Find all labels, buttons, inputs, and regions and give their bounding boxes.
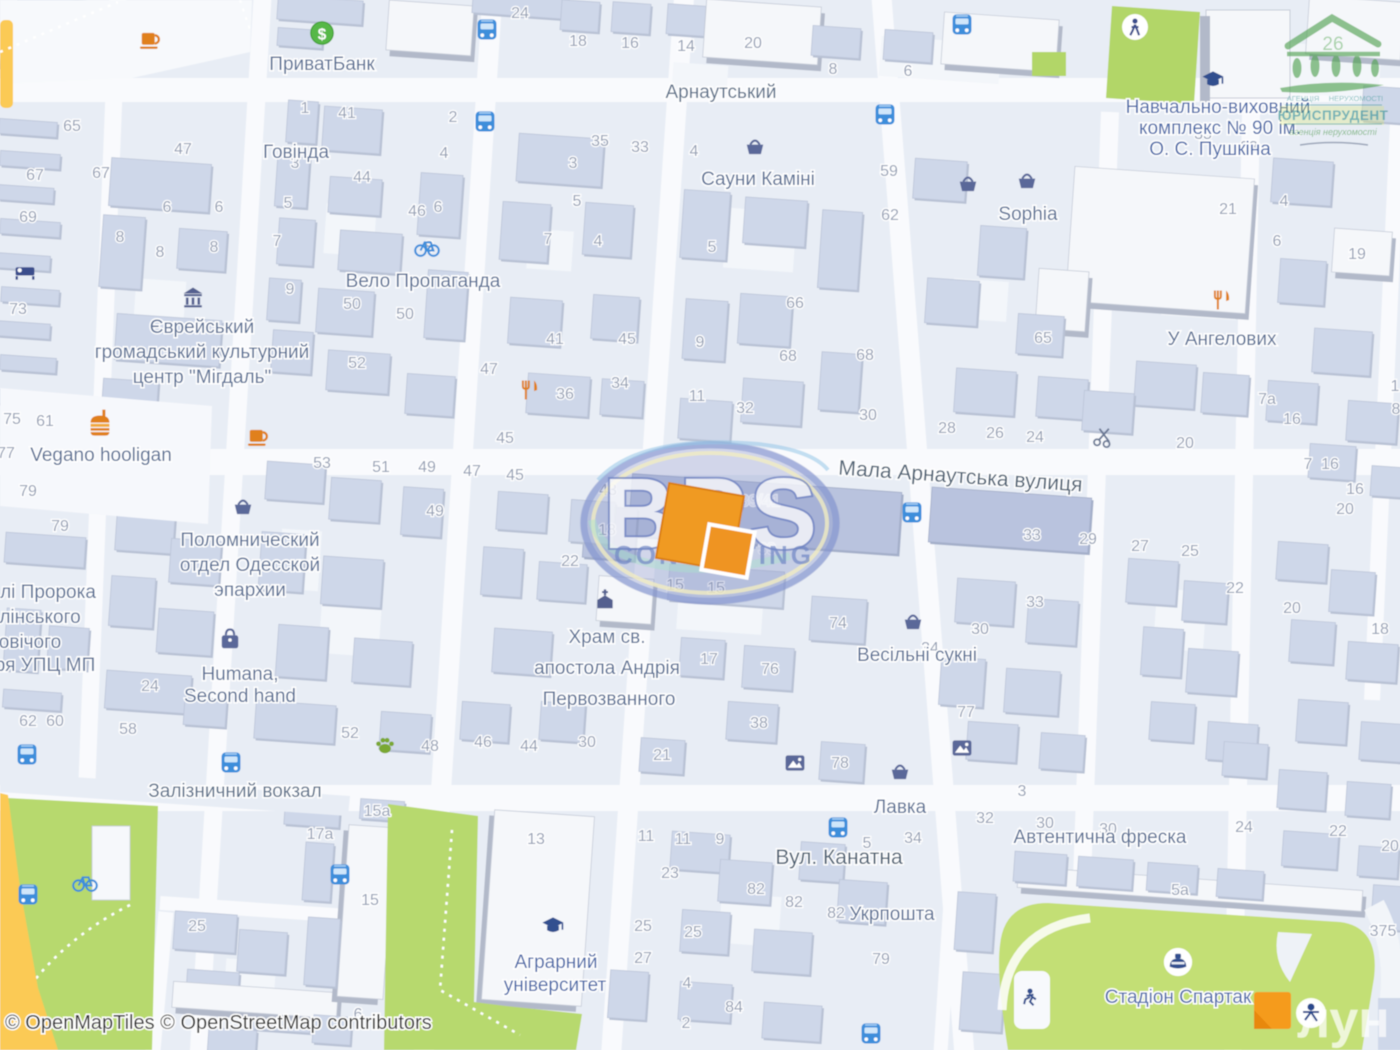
svg-text:центр "Мігдаль": центр "Мігдаль" xyxy=(133,367,272,388)
svg-text:32: 32 xyxy=(976,810,994,827)
svg-text:3: 3 xyxy=(569,155,578,172)
svg-text:375: 375 xyxy=(1370,923,1397,940)
svg-text:65: 65 xyxy=(1034,330,1052,347)
svg-text:45: 45 xyxy=(618,331,636,348)
svg-text:50: 50 xyxy=(396,306,414,323)
svg-text:62: 62 xyxy=(19,713,37,730)
svg-text:22: 22 xyxy=(1329,823,1347,840)
svg-text:ПриватБанк: ПриватБанк xyxy=(269,54,375,75)
svg-text:5: 5 xyxy=(708,239,717,256)
svg-text:16: 16 xyxy=(1283,411,1301,428)
svg-text:77: 77 xyxy=(0,445,15,462)
svg-text:20: 20 xyxy=(1283,600,1301,617)
svg-text:6: 6 xyxy=(1273,233,1282,250)
svg-text:16: 16 xyxy=(1321,456,1339,473)
svg-text:5a: 5a xyxy=(1171,882,1189,899)
svg-text:41: 41 xyxy=(338,105,356,122)
svg-text:14: 14 xyxy=(677,38,695,55)
svg-text:апостола Андрія: апостола Андрія xyxy=(534,658,680,679)
svg-text:20: 20 xyxy=(744,35,762,52)
svg-text:18: 18 xyxy=(569,33,587,50)
svg-text:73: 73 xyxy=(9,301,27,318)
svg-text:15a: 15a xyxy=(364,803,391,820)
svg-text:О. С. Пушкіна: О. С. Пушкіна xyxy=(1149,139,1271,160)
svg-text:8: 8 xyxy=(210,239,219,256)
svg-text:52: 52 xyxy=(341,725,359,742)
svg-text:46: 46 xyxy=(408,203,426,220)
svg-text:49: 49 xyxy=(426,503,444,520)
svg-text:4: 4 xyxy=(683,975,692,992)
svg-text:33: 33 xyxy=(1023,527,1041,544)
svg-text:ЮРИСПРУДЕНТ: ЮРИСПРУДЕНТ xyxy=(1278,108,1389,123)
svg-text:50: 50 xyxy=(343,296,361,313)
svg-text:11: 11 xyxy=(675,831,692,848)
svg-text:19: 19 xyxy=(1348,246,1366,263)
svg-text:Говінда: Говінда xyxy=(263,142,329,163)
svg-text:47: 47 xyxy=(480,361,498,378)
svg-text:24: 24 xyxy=(1026,429,1044,446)
svg-text:44: 44 xyxy=(353,169,371,186)
svg-text:Vegano hooligan: Vegano hooligan xyxy=(30,445,172,466)
svg-text:6: 6 xyxy=(163,199,172,216)
svg-text:82: 82 xyxy=(827,905,845,922)
svg-text:76: 76 xyxy=(761,661,779,678)
svg-text:Humana,: Humana, xyxy=(201,664,278,685)
svg-text:25: 25 xyxy=(1181,543,1199,560)
svg-text:Стадіон Спартак: Стадіон Спартак xyxy=(1105,987,1252,1008)
svg-text:67: 67 xyxy=(26,167,44,184)
svg-text:46: 46 xyxy=(474,734,492,751)
svg-text:58: 58 xyxy=(119,721,137,738)
svg-text:Первозванного: Первозванного xyxy=(543,689,676,710)
svg-text:13: 13 xyxy=(527,831,545,848)
svg-text:2: 2 xyxy=(449,109,458,126)
svg-text:НЕРУХОМОСТІ: НЕРУХОМОСТІ xyxy=(1329,94,1384,103)
svg-text:33: 33 xyxy=(1026,594,1044,611)
svg-text:Укрпошта: Укрпошта xyxy=(849,904,935,925)
svg-text:8: 8 xyxy=(116,229,125,246)
svg-text:47: 47 xyxy=(463,463,481,480)
svg-text:45: 45 xyxy=(496,430,514,447)
svg-text:16: 16 xyxy=(621,35,639,52)
svg-text:79: 79 xyxy=(872,951,890,968)
svg-text:2: 2 xyxy=(682,1015,691,1032)
svg-text:Вело Пропаганда: Вело Пропаганда xyxy=(346,271,501,292)
svg-text:4: 4 xyxy=(594,233,603,250)
svg-text:34: 34 xyxy=(611,375,629,392)
svg-text:44: 44 xyxy=(520,738,538,755)
svg-text:51: 51 xyxy=(372,459,390,476)
svg-text:Храм св.: Храм св. xyxy=(568,627,645,648)
svg-text:25: 25 xyxy=(634,918,652,935)
svg-text:30: 30 xyxy=(578,734,596,751)
svg-text:громадський культурний: громадський культурний xyxy=(95,342,310,363)
svg-text:22: 22 xyxy=(561,553,579,570)
svg-text:Єврейський: Єврейський xyxy=(150,317,254,338)
svg-text:Second hand: Second hand xyxy=(184,686,296,707)
svg-text:69: 69 xyxy=(19,209,37,226)
svg-text:79: 79 xyxy=(19,483,37,500)
svg-text:24: 24 xyxy=(1235,819,1253,836)
svg-text:20: 20 xyxy=(1381,838,1399,855)
svg-text:Автентична фреска: Автентична фреска xyxy=(1013,827,1186,848)
svg-text:Сауни Каміні: Сауни Каміні xyxy=(701,169,815,190)
svg-text:65: 65 xyxy=(63,118,81,135)
svg-text:30: 30 xyxy=(859,407,877,424)
svg-text:8: 8 xyxy=(1392,401,1400,418)
svg-text:4: 4 xyxy=(1280,193,1289,210)
svg-text:24: 24 xyxy=(511,5,529,22)
svg-text:68: 68 xyxy=(856,347,874,364)
svg-text:Арнаутський: Арнаутський xyxy=(665,82,776,103)
svg-text:11: 11 xyxy=(689,388,706,405)
svg-text:Вул. Канатна: Вул. Канатна xyxy=(775,846,903,869)
svg-text:7: 7 xyxy=(544,231,553,248)
svg-text:ря УПЦ МП: ря УПЦ МП xyxy=(0,655,95,676)
svg-text:82: 82 xyxy=(785,894,803,911)
svg-text:52: 52 xyxy=(348,355,366,372)
svg-text:27: 27 xyxy=(1131,538,1149,555)
svg-text:1: 1 xyxy=(1391,378,1400,395)
svg-text:7: 7 xyxy=(273,233,282,250)
svg-text:25: 25 xyxy=(188,918,206,935)
svg-text:67: 67 xyxy=(92,165,110,182)
svg-text:6: 6 xyxy=(904,63,913,80)
svg-text:53: 53 xyxy=(313,455,331,472)
svg-text:Аграрний: Аграрний xyxy=(514,952,597,973)
svg-text:3: 3 xyxy=(1018,783,1027,800)
svg-text:45: 45 xyxy=(506,467,524,484)
svg-text:лінського: лінського xyxy=(0,607,81,628)
svg-text:8: 8 xyxy=(829,61,838,78)
svg-text:9: 9 xyxy=(696,334,705,351)
svg-text:7: 7 xyxy=(1304,456,1313,473)
svg-text:47: 47 xyxy=(174,141,192,158)
svg-text:эпархии: эпархии xyxy=(214,580,286,601)
svg-text:79: 79 xyxy=(51,518,69,535)
svg-text:9: 9 xyxy=(286,281,295,298)
svg-text:8: 8 xyxy=(156,244,165,261)
svg-text:21: 21 xyxy=(653,747,671,764)
svg-text:66: 66 xyxy=(786,295,804,312)
svg-text:36: 36 xyxy=(556,386,574,403)
svg-text:1: 1 xyxy=(301,100,310,117)
svg-text:23: 23 xyxy=(661,865,679,882)
svg-text:27: 27 xyxy=(634,950,652,967)
svg-text:6: 6 xyxy=(434,199,443,216)
svg-text:4: 4 xyxy=(690,143,699,160)
svg-text:75: 75 xyxy=(3,411,21,428)
svg-text:отдел Одесской: отдел Одесской xyxy=(180,555,320,576)
svg-text:24: 24 xyxy=(141,678,159,695)
svg-text:21: 21 xyxy=(1219,201,1237,218)
svg-text:78: 78 xyxy=(831,755,849,772)
svg-text:16: 16 xyxy=(1346,481,1364,498)
svg-text:Sophia: Sophia xyxy=(998,204,1058,225)
svg-text:Поломнический: Поломнический xyxy=(180,530,319,551)
svg-text:30: 30 xyxy=(971,621,989,638)
svg-text:університет: університет xyxy=(504,975,607,996)
svg-text:35: 35 xyxy=(591,133,609,150)
svg-text:20: 20 xyxy=(1336,501,1354,518)
svg-text:7a: 7a xyxy=(1258,391,1276,408)
svg-text:Весільні сукні: Весільні сукні xyxy=(857,645,977,666)
svg-text:59: 59 xyxy=(880,163,898,180)
svg-text:34: 34 xyxy=(904,830,922,847)
svg-text:агенція нерухомості: агенція нерухомості xyxy=(1289,127,1377,137)
svg-text:29: 29 xyxy=(1079,531,1097,548)
svg-text:62: 62 xyxy=(881,207,899,224)
svg-text:68: 68 xyxy=(779,348,797,365)
svg-text:74: 74 xyxy=(829,615,847,632)
svg-text:33: 33 xyxy=(631,139,649,156)
svg-text:У Ангелових: У Ангелових xyxy=(1167,329,1277,350)
svg-text:82: 82 xyxy=(747,881,765,898)
svg-text:9: 9 xyxy=(716,831,725,848)
svg-text:22: 22 xyxy=(1226,580,1244,597)
svg-text:20: 20 xyxy=(1176,435,1194,452)
svg-text:49: 49 xyxy=(418,459,436,476)
svg-text:38: 38 xyxy=(750,715,768,732)
svg-text:5: 5 xyxy=(573,193,582,210)
svg-text:32: 32 xyxy=(736,400,754,417)
svg-text:17a: 17a xyxy=(307,826,334,843)
svg-text:Залізничний вокзал: Залізничний вокзал xyxy=(148,781,321,802)
svg-text:© OpenMapTiles © OpenStreetMap: © OpenMapTiles © OpenStreetMap contribut… xyxy=(5,1012,432,1034)
svg-text:Лавка: Лавка xyxy=(874,797,927,818)
svg-text:60: 60 xyxy=(46,713,64,730)
svg-text:лі Пророка: лі Пророка xyxy=(0,582,96,603)
svg-text:26: 26 xyxy=(986,425,1004,442)
svg-text:15: 15 xyxy=(361,892,379,909)
svg-text:4: 4 xyxy=(440,145,449,162)
svg-text:61: 61 xyxy=(36,413,54,430)
svg-text:28: 28 xyxy=(938,420,956,437)
svg-text:41: 41 xyxy=(546,331,564,348)
svg-text:17: 17 xyxy=(700,651,718,668)
svg-text:11: 11 xyxy=(638,828,655,845)
svg-text:25: 25 xyxy=(684,924,702,941)
svg-text:48: 48 xyxy=(421,738,439,755)
svg-text:АГЕНЦІЯ: АГЕНЦІЯ xyxy=(1287,94,1320,103)
svg-text:77: 77 xyxy=(957,704,975,721)
svg-text:18: 18 xyxy=(1371,621,1389,638)
svg-text:овічого: овічого xyxy=(0,632,61,653)
svg-text:26: 26 xyxy=(1322,34,1343,55)
svg-text:5: 5 xyxy=(284,195,293,212)
svg-text:6: 6 xyxy=(215,199,224,216)
svg-text:84: 84 xyxy=(725,999,743,1016)
